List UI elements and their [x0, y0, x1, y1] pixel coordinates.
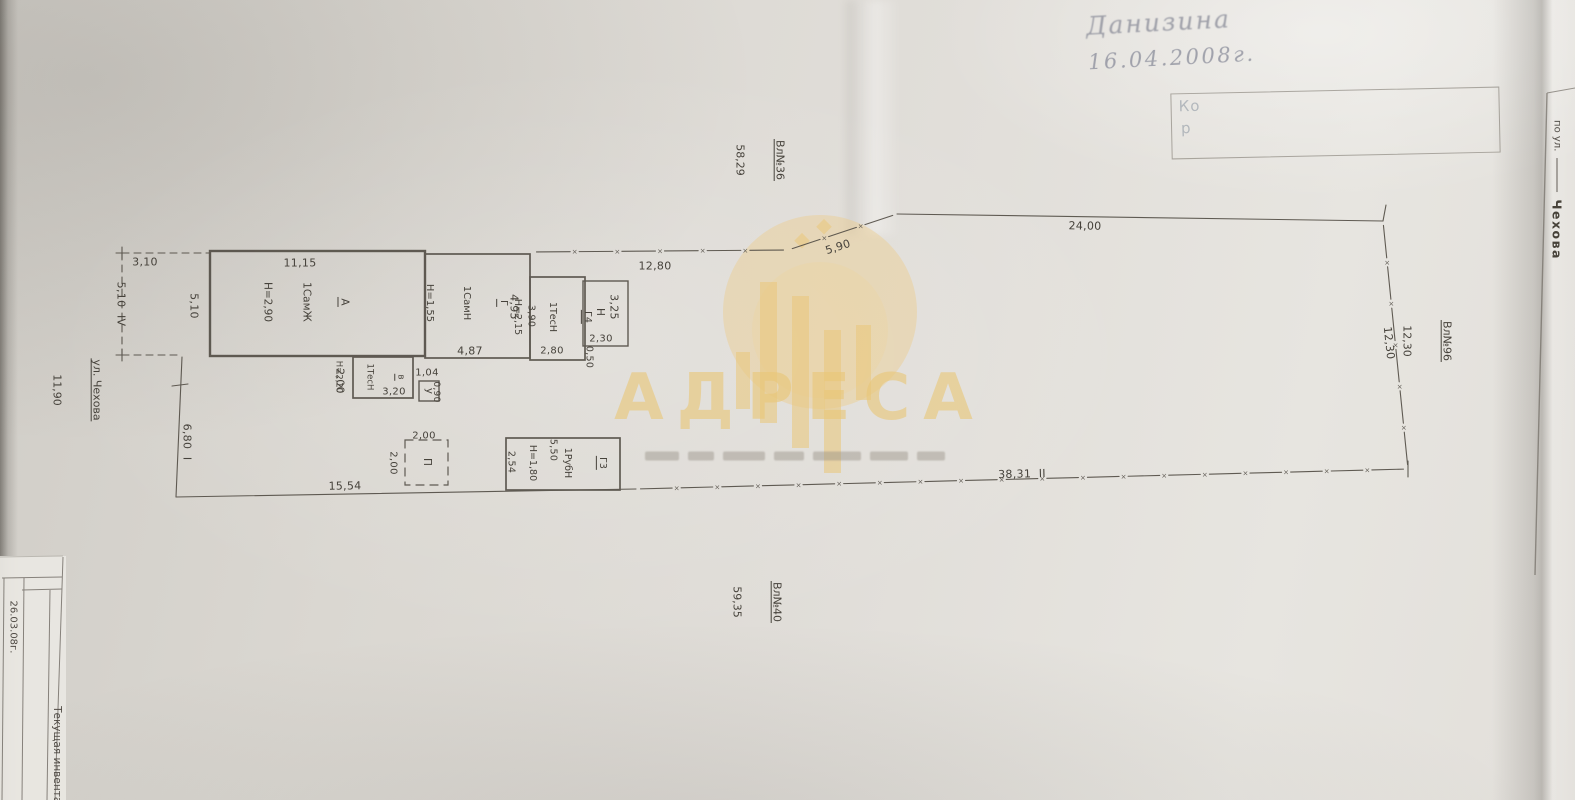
svg-text:×: × — [1121, 473, 1127, 481]
svg-text:×: × — [917, 478, 923, 486]
building-v-type: 1ТесН — [364, 361, 374, 393]
svg-text:×: × — [572, 248, 578, 256]
svg-text:×: × — [796, 481, 802, 489]
svg-text:×: × — [700, 247, 706, 255]
building-G3-height: Н=1,80 — [526, 445, 538, 481]
structure-P-letter: П — [421, 455, 434, 468]
dim-structure-p-width: 2,00 — [412, 431, 435, 442]
street-label: ул. Чехова 11,90 — [23, 358, 130, 421]
dim-boundary-38-31: 38,31 II — [998, 467, 1046, 481]
neighbor-bottom-number: Вл№40 — [770, 581, 783, 623]
building-G3-label: Г3 1РубН Н=1,80 — [503, 445, 631, 481]
svg-text:×: × — [1364, 467, 1370, 475]
dim-boundary-24-00: 24,00 — [1068, 219, 1101, 233]
scanned-site-plan-photo: АДРЕСА Данизина 16.04.2008г. Ко р — [0, 0, 1575, 800]
svg-text:×: × — [1161, 472, 1167, 480]
svg-text:×: × — [821, 235, 827, 243]
building-G4-height: Н=2,15 — [511, 299, 523, 335]
svg-text:×: × — [1243, 470, 1249, 478]
neighbor-right-label: Вл№96 12,30 — [1373, 320, 1480, 362]
svg-text:×: × — [1397, 383, 1403, 391]
building-G-type: 1СамН — [460, 284, 472, 322]
building-u-label: у — [398, 385, 459, 398]
neighbor-right-length: 12,30 — [1400, 320, 1413, 362]
svg-text:×: × — [614, 248, 620, 256]
blank-rule — [1557, 158, 1558, 192]
dim-boundary-15-54: 15,54 — [328, 479, 361, 493]
building-G3-letter: Г3 — [596, 456, 607, 470]
dim-parcel-5-10-iv: 5,10 IV — [115, 282, 128, 327]
svg-text:×: × — [742, 247, 748, 255]
dim-building-a-width: 11,15 — [284, 257, 317, 270]
building-A-type: 1СамЖ — [299, 282, 312, 322]
dim-parcel-6-80-i: 6,80 I — [181, 424, 194, 461]
svg-text:×: × — [714, 483, 720, 491]
adjacent-page-street: Чехова — [1550, 199, 1565, 260]
building-A-height: Н=2,90 — [261, 282, 274, 322]
title-block-inventory-label: Текущая инвентар — [51, 706, 63, 800]
neighbor-top-length: 58,29 — [733, 139, 746, 181]
building-G4-type: 1ТесН — [546, 299, 558, 335]
building-v-letter: в — [395, 373, 405, 380]
dim-building-g-width: 4,87 — [457, 345, 483, 358]
svg-text:×: × — [755, 482, 761, 490]
street-frontage: 11,90 — [50, 358, 63, 421]
site-plan-drawing: ×××××××××××××××××××××××××××××× — [0, 0, 1575, 800]
dim-building-n-offset: 0,50 — [584, 346, 595, 368]
svg-text:×: × — [836, 480, 842, 488]
dim-parcel-3-10: 3,10 — [132, 256, 158, 269]
title-block-date: 26.03.08г. — [8, 601, 19, 654]
dim-building-a-depth: 5,10 — [188, 293, 201, 319]
neighbor-top-number: Вл№36 — [773, 139, 786, 181]
building-v-height: Н=2,20 — [332, 361, 342, 393]
building-G-height: Н=1,55 — [423, 284, 435, 322]
svg-text:×: × — [1384, 259, 1390, 267]
dim-boundary-12-80: 12,80 — [639, 260, 672, 273]
adjacent-page-prefix: по ул. — [1552, 120, 1563, 151]
street-name: ул. Чехова — [90, 358, 103, 421]
svg-text:×: × — [858, 223, 864, 231]
svg-text:×: × — [1388, 300, 1394, 308]
neighbor-bottom-length: 59,35 — [730, 581, 743, 623]
svg-text:×: × — [674, 484, 680, 492]
svg-text:×: × — [1324, 468, 1330, 476]
svg-text:×: × — [657, 248, 663, 256]
svg-text:×: × — [1080, 474, 1086, 482]
building-N-label: Н — [568, 305, 632, 318]
building-A-letter: А — [338, 297, 350, 306]
svg-text:×: × — [877, 479, 883, 487]
adjacent-page-street-caption: по ул. Чехова — [1550, 120, 1565, 260]
building-u-letter: у — [422, 385, 434, 398]
svg-text:×: × — [1283, 469, 1289, 477]
neighbor-right-number: Вл№96 — [1440, 320, 1453, 362]
building-A-label: А 1СамЖ Н=2,90 — [236, 282, 377, 322]
neighbor-bottom-label: Вл№40 59,35 — [703, 581, 810, 623]
svg-text:×: × — [1401, 424, 1407, 432]
dim-building-n-width: 2,30 — [589, 334, 612, 345]
building-N-letter: Н — [594, 305, 607, 318]
building-G3-type: 1РубН — [561, 445, 573, 481]
neighbor-top-label: Вл№36 58,29 — [706, 139, 813, 181]
structure-P-label: П — [395, 455, 459, 468]
svg-text:×: × — [958, 477, 964, 485]
dim-building-g4-width: 2,80 — [540, 346, 563, 357]
svg-text:×: × — [1202, 471, 1208, 479]
